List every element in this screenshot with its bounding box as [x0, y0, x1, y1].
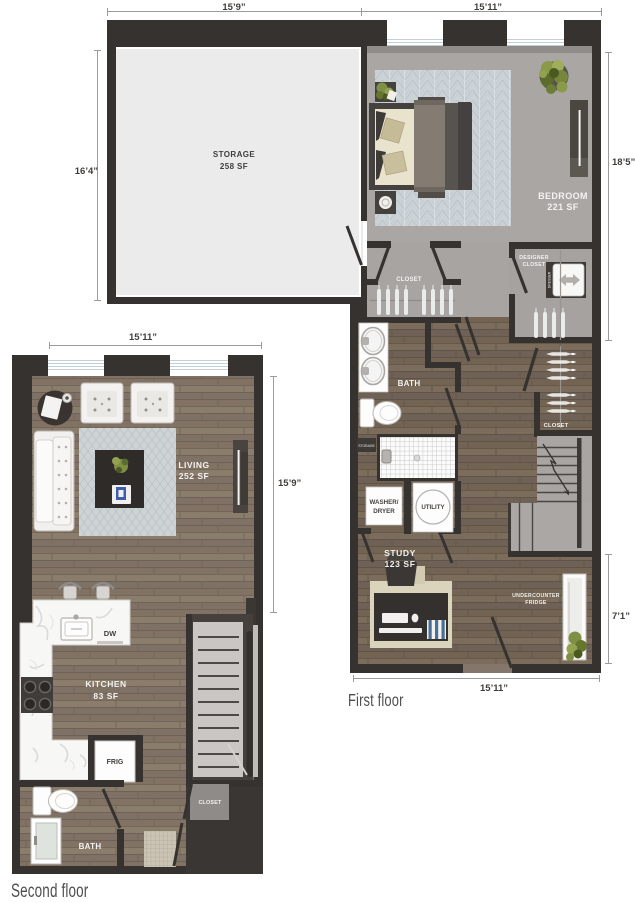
svg-text:16’4”: 16’4”: [75, 166, 98, 177]
svg-text:First floor: First floor: [348, 691, 404, 711]
svg-text:15’11”: 15’11”: [480, 683, 508, 694]
svg-text:FRIG: FRIG: [107, 759, 124, 766]
svg-text:83 SF: 83 SF: [93, 691, 118, 701]
svg-text:KITCHEN: KITCHEN: [85, 679, 126, 689]
svg-text:DESIGNER: DESIGNER: [519, 255, 549, 261]
svg-text:STORAGE: STORAGE: [213, 150, 255, 159]
svg-text:15’9”: 15’9”: [278, 478, 301, 489]
svg-text:DW: DW: [104, 629, 117, 638]
svg-text:DRESSER: DRESSER: [548, 271, 552, 288]
svg-text:BATH: BATH: [79, 842, 102, 851]
svg-text:LIVING: LIVING: [178, 460, 209, 470]
svg-text:CLOSET: CLOSET: [544, 423, 569, 429]
svg-text:15’11”: 15’11”: [129, 332, 157, 343]
svg-text:18’5”: 18’5”: [612, 157, 635, 168]
svg-text:Second floor: Second floor: [11, 881, 89, 902]
svg-text:221 SF: 221 SF: [547, 202, 579, 212]
svg-text:STUDY: STUDY: [384, 548, 416, 558]
svg-text:UNDERCOUNTER: UNDERCOUNTER: [512, 593, 560, 599]
svg-text:CLOSET: CLOSET: [523, 262, 546, 268]
svg-text:15’11”: 15’11”: [474, 2, 502, 13]
svg-text:UTILITY: UTILITY: [421, 504, 445, 511]
svg-text:CLOSET: CLOSET: [396, 277, 422, 283]
svg-text:252 SF: 252 SF: [179, 471, 209, 481]
svg-text:DRYER: DRYER: [373, 508, 395, 515]
svg-text:BEDROOM: BEDROOM: [538, 191, 588, 201]
svg-text:258 SF: 258 SF: [220, 162, 248, 171]
svg-text:123 SF: 123 SF: [384, 559, 415, 569]
svg-text:STORAGE: STORAGE: [358, 444, 375, 448]
svg-text:7’1”: 7’1”: [612, 611, 630, 622]
svg-text:CLOSET: CLOSET: [198, 800, 222, 806]
svg-text:BATH: BATH: [398, 379, 421, 388]
svg-text:FRIDGE: FRIDGE: [525, 600, 547, 606]
svg-text:WASHER/: WASHER/: [370, 499, 399, 506]
svg-text:15’9”: 15’9”: [222, 2, 245, 13]
